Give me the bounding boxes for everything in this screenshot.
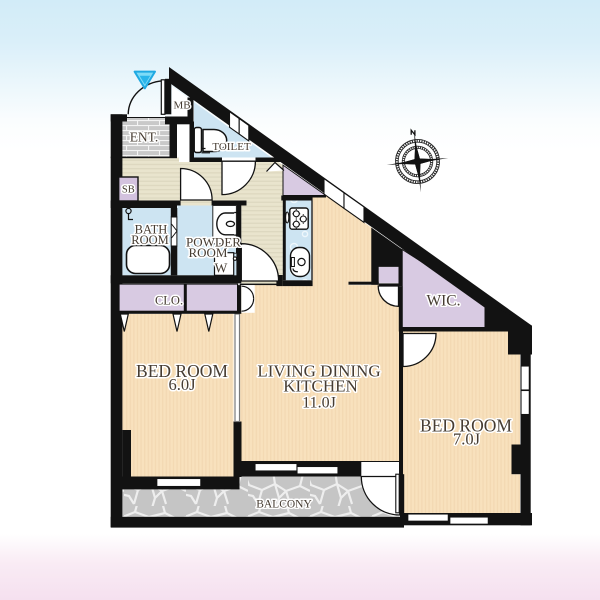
svg-text:ROOM: ROOM [188,245,227,260]
svg-text:ROOM: ROOM [131,233,169,247]
svg-text:SB: SB [122,185,135,196]
svg-text:6.0J: 6.0J [168,375,196,394]
svg-text:MB: MB [173,100,190,112]
svg-text:11.0J: 11.0J [302,395,336,412]
svg-text:BALCONY: BALCONY [256,499,312,511]
svg-text:ENT.: ENT. [130,130,159,145]
svg-text:TOILET: TOILET [212,141,251,153]
svg-text:W: W [215,261,228,276]
svg-text:WIC.: WIC. [426,293,460,310]
svg-text:KITCHEN: KITCHEN [283,377,358,396]
svg-text:7.0J: 7.0J [453,430,481,449]
svg-text:CLO.: CLO. [155,294,183,308]
